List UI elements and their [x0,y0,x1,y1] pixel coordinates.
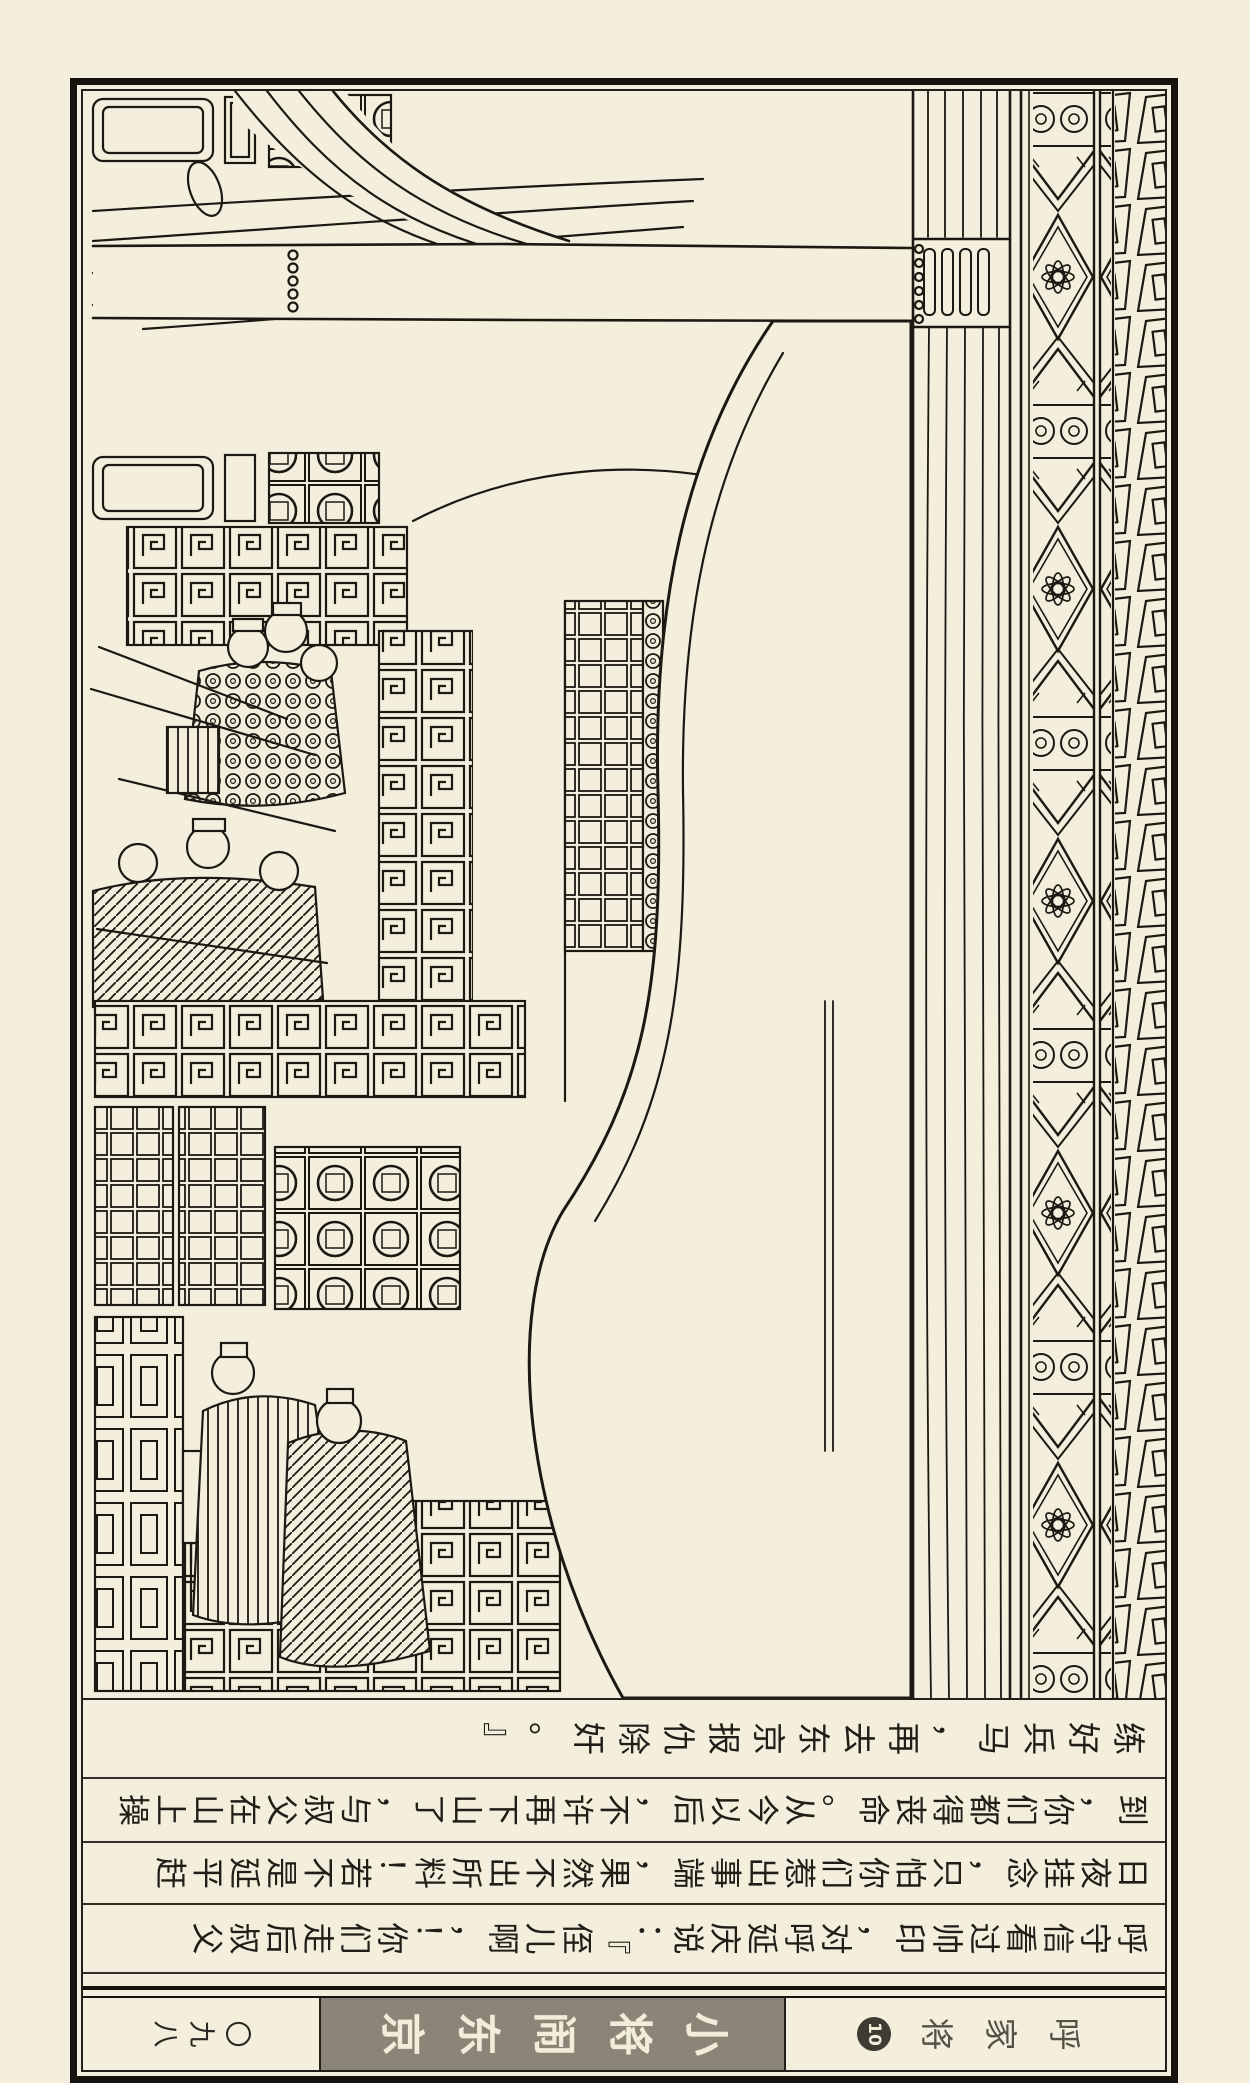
lattice-window-1 [95,1107,173,1305]
series-title: 呼家将 [905,1998,1097,2070]
great-pillar [913,91,1010,1698]
series-title-cell: 呼家将 10 [786,1998,1165,2070]
page-frame: 练好兵马，再去东京报仇除奸。』 到，你们都得丧命。从今以后，不许再下山了，与叔父… [70,78,1178,2083]
rotated-char: 小 [669,1996,741,2072]
page-number-cell: 〇九八 [83,1998,321,2070]
rotated-char: 呼 [1029,2002,1101,2066]
lattice-window-2 [179,1107,265,1305]
series-title-group: 呼家将 10 [855,1998,1097,2070]
rotated-char: 操 [103,1792,165,1829]
rotated-char: 』 [460,1716,537,1761]
rotated-char: 将 [593,1996,665,2072]
illustration-panel [83,91,1165,1700]
scanned-comic-page: { "meta": { "description": "Scanned page… [0,0,1250,2083]
issue-number-badge: 10 [857,2017,891,2051]
page-frame-inner: 练好兵马，再去东京报仇除奸。』 到，你们都得丧命。从今以后，不许再下山了，与叔父… [81,89,1167,2072]
coin-railing [275,1147,460,1309]
eave-borders [1021,91,1165,1698]
cross-beam [93,244,913,321]
rotated-char: 家 [965,2002,1037,2066]
wall-panels-mid [93,453,379,523]
rotated-char: 父 [174,1920,241,1957]
fine-grid-band [565,601,643,951]
rotated-char: 将 [901,2002,973,2066]
footer-gap [83,1974,1165,1986]
giant-robe [529,321,911,1698]
rotated-char: 八 [129,2016,201,2052]
attendants-lower [93,819,327,1014]
page-number: 〇九八 [147,1998,255,2070]
footer-band: 〇九八 小将闹东京 呼家将 10 [83,1998,1165,2070]
rotated-char: 闹 [517,1996,589,2072]
illustration-strokes [91,91,1165,1698]
brick-railing [95,1001,525,1097]
caption-row-3: 日夜挂念，只怕你们惹出事端，果然不出所料！若不是延平赶 [83,1843,1165,1905]
kneeling-figures [183,1343,430,1667]
brick-band-vertical [379,631,473,1011]
rotated-char: 赶 [141,1855,201,1892]
caption-row-2: 到，你们都得丧命。从今以后，不许再下山了，与叔父在山上操 [83,1779,1165,1843]
rotated-char: 东 [441,1996,513,2072]
panel-strip-left [95,1317,183,1691]
palace-scene-line-art [83,91,1165,1698]
episode-title-block: 小将闹东京 [321,1998,786,2070]
caption-row-4: 呼守信看过帅印，对呼延庆说：『侄儿啊，！你们走后叔父 [83,1905,1165,1974]
caption-row-1: 练好兵马，再去东京报仇除奸。』 [83,1700,1165,1779]
rotated-char: 京 [365,1996,437,2072]
episode-title: 小将闹东京 [363,1998,743,2070]
